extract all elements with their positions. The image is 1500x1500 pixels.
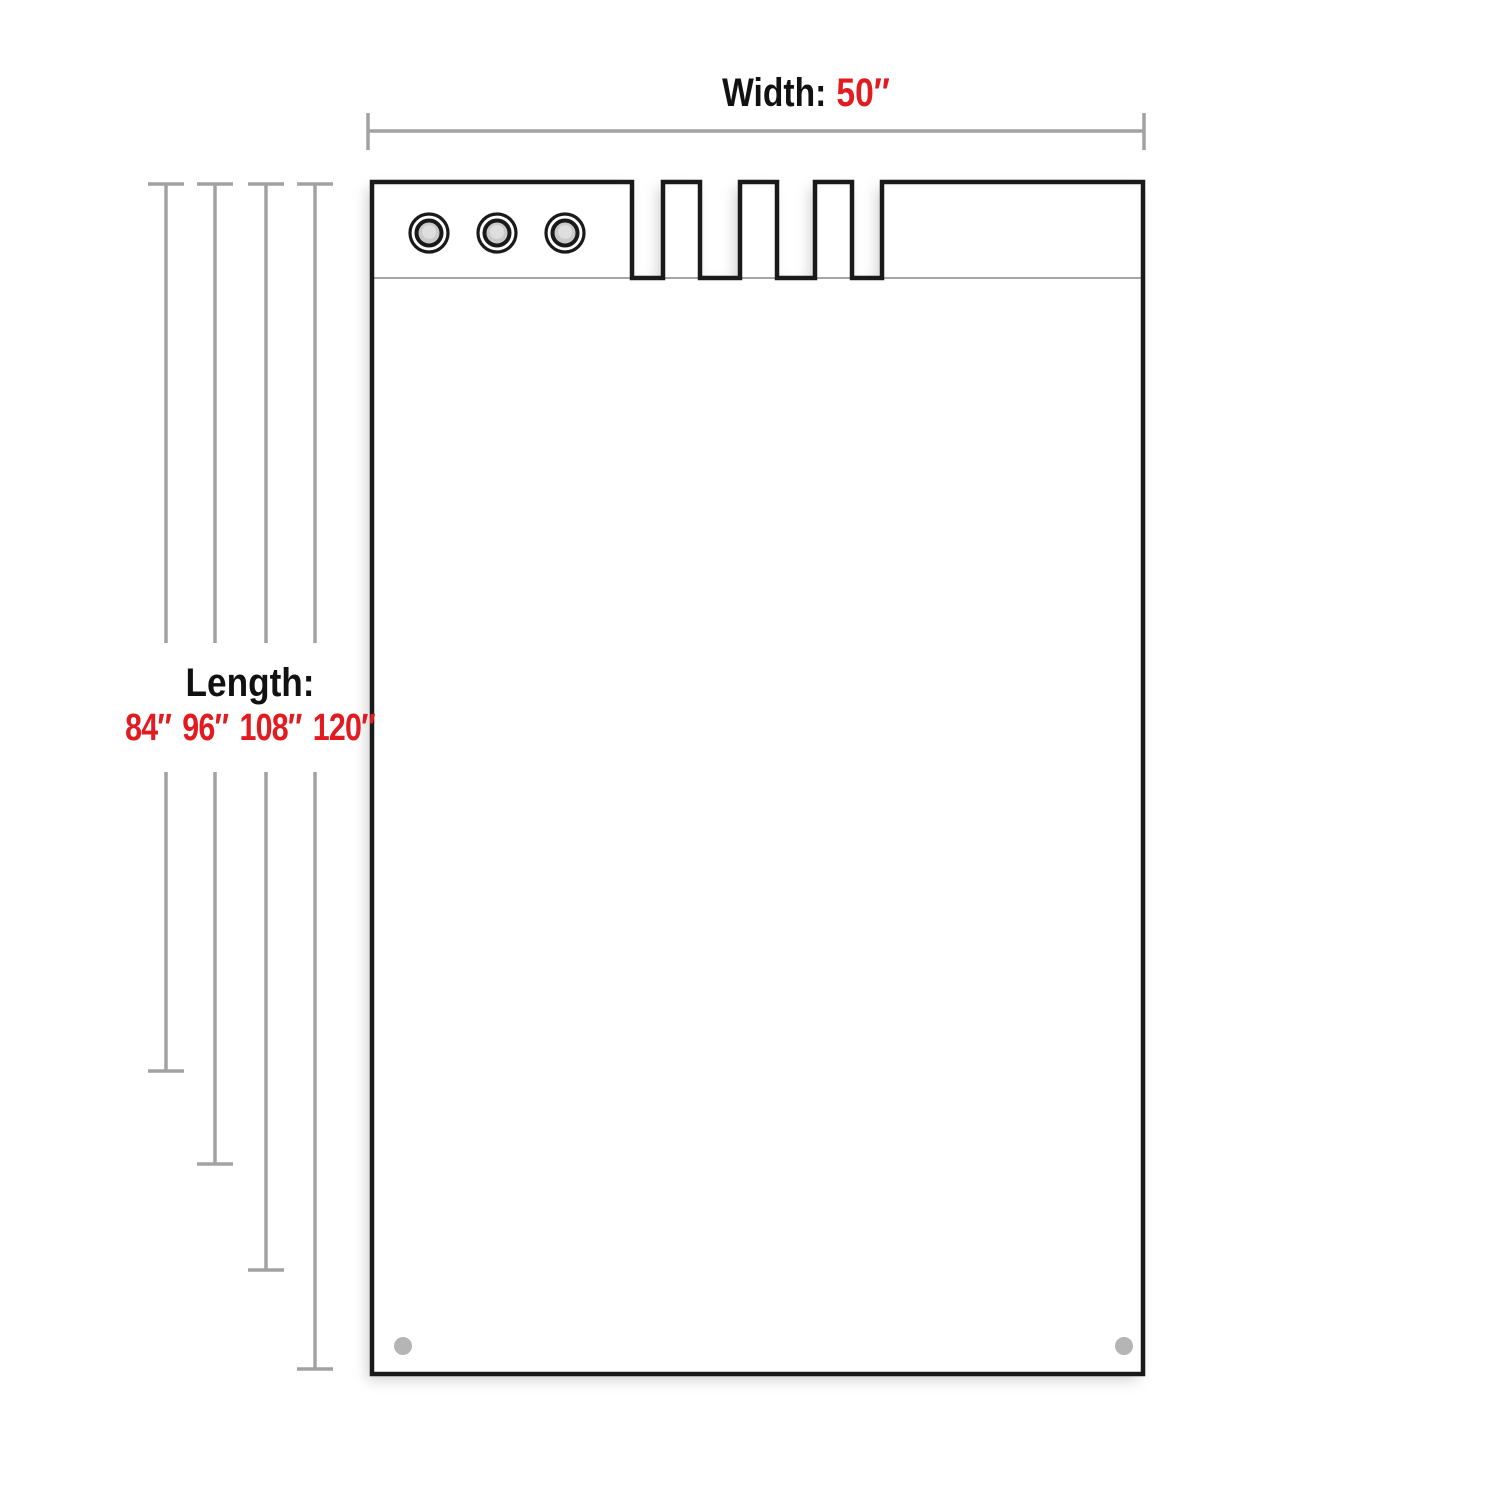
length-line-120in [297, 184, 333, 1369]
width-label-text: Width: [722, 71, 826, 115]
width-dimension-line [368, 113, 1144, 150]
length-value-108: 108″ [240, 707, 302, 749]
length-value-84: 84″ [125, 707, 171, 749]
length-line-84in [148, 184, 184, 1071]
grommet [546, 214, 584, 252]
grommet [478, 214, 516, 252]
easel-pad-dimension-diagram: Width:50″ Length: 84″96″108″120″ [0, 0, 1500, 1500]
length-dimension-label: Length: [185, 662, 314, 704]
width-value: 50″ [836, 71, 889, 115]
bottom-hole [394, 1337, 412, 1355]
width-dimension-label: Width:50″ [722, 72, 890, 114]
length-value-120: 120″ [313, 707, 375, 749]
grommet [410, 214, 448, 252]
diagram-drawing [0, 0, 1500, 1500]
length-value-96: 96″ [182, 707, 228, 749]
bottom-hole [1115, 1337, 1133, 1355]
pad-body [372, 182, 1143, 1374]
length-dimension-lines [148, 184, 333, 1369]
grommets [410, 214, 584, 252]
length-values: 84″96″108″120″ [120, 709, 381, 749]
